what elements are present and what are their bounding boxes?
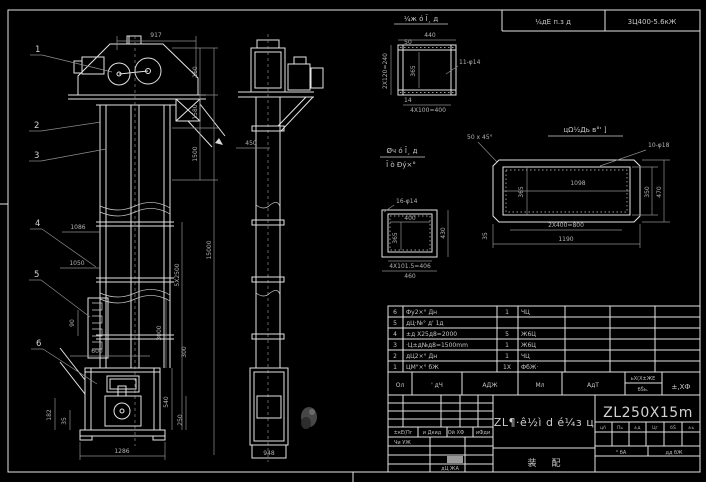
dim-15000: 15000 [206, 240, 213, 259]
gray-smudge [301, 407, 317, 429]
part-name: Фу2×° Дн [406, 309, 437, 316]
dim-365-flange: 365 [392, 232, 399, 244]
dim-160: 160 [192, 66, 199, 78]
part-no: 4 [393, 331, 397, 338]
dim-600: 600 [91, 348, 103, 355]
table-footer-name: ' дЧ [431, 382, 443, 389]
dim-1286: 1286 [114, 448, 129, 455]
dim-365-plate: 365 [518, 186, 525, 198]
stage-char-2: 配 [551, 458, 560, 469]
mid-note-line1: Øч ó Ī¸ д [386, 146, 417, 155]
dim-50: 50 [404, 39, 412, 46]
tb-right-s2: Пь [617, 425, 623, 431]
parts-row-1: 1 ЦМ"×° бЖ 1X ФбЖ· [393, 364, 538, 371]
dim-470: 470 [656, 186, 663, 198]
channel-note: ¼ж ó Ī¸ д [404, 14, 439, 23]
mid-note: Øч ó Ī¸ д Ī ò Đý×° [380, 146, 425, 169]
model-number: ZL250X15m [603, 405, 693, 421]
balloon-4: 4 [35, 219, 40, 229]
dim-250: 250 [177, 414, 184, 426]
dim-365-channel: 365 [410, 65, 417, 77]
tb-left-h1: ±кЕ(Пг [394, 430, 413, 436]
dim-2x120: 2X120=240 [382, 53, 389, 89]
gray-stamp-cell [447, 456, 463, 463]
parts-row-6: 6 Фу2×° Дн 1 ЧЦ [393, 309, 530, 316]
part-no: 6 [393, 309, 397, 316]
plate-detail: цΩ½Дь в°' ] 50 x 45° 10-φ18 1098 365 350… [467, 126, 670, 248]
balloon-1: 1 [35, 45, 40, 55]
part-qty: 1 [505, 353, 509, 360]
table-footer-material: АдТ [587, 382, 599, 389]
tb-right-a1: ° бА [616, 450, 627, 456]
dim-460: 460 [404, 273, 416, 280]
header-left-note: ¼дЕ п.з д [535, 18, 571, 26]
dim-1098: 1098 [570, 180, 585, 187]
dim-1580: 1580 [192, 104, 199, 119]
dim-2x400: 2X400=800 [548, 222, 584, 229]
stage-char-1: 装 [527, 457, 536, 469]
tb-left-h2: и Дкид [423, 430, 442, 436]
part-name: дЦ2×° Дн [406, 353, 437, 360]
dim-400: 400 [404, 215, 416, 222]
part-qty: 1X [503, 364, 511, 371]
part-name: ЦМ"×° бЖ [406, 364, 439, 371]
parts-row-2: 2 дЦ2×° Дн 1 ЧЦ [393, 353, 530, 360]
channel-detail: ¼ж ó Ī¸ д 440 50 11-φ14 2X120=240 365 14… [382, 14, 481, 114]
parts-table: 6 Фу2×° Дн 1 ЧЦ 5 дЦ·№° д' 1д 4 ±д X25д8… [388, 306, 700, 395]
dim-5x2500: 5X2500 [174, 263, 181, 286]
tb-left-h4: иФди [476, 430, 490, 436]
part-material: ФбЖ· [521, 364, 538, 371]
tb-right-s6: ±ь [688, 425, 695, 431]
dim-14: 14 [404, 97, 412, 104]
part-qty: 5 [505, 331, 509, 338]
dim-440: 440 [424, 32, 436, 39]
table-footer-remark: ±,XФ [672, 383, 691, 391]
part-no: 5 [393, 320, 397, 327]
title-block: ±кЕ(Пг и Дкид Ой ХФ иФди Чи УЖ дЦ ЖА ZL¶… [388, 395, 700, 472]
tb-right-s3: ±д [634, 425, 641, 431]
part-material: ЧЦ [521, 353, 530, 360]
table-footer-drawingno: АДЖ [482, 382, 498, 389]
part-name: ±д X25д8=2000 [406, 331, 457, 338]
dim-4x100: 4X100=400 [410, 107, 446, 114]
part-name: ·Ц±д№д8=1500mm [406, 342, 468, 349]
dim-430: 430 [440, 227, 447, 239]
part-material: ЧЦ [521, 309, 530, 316]
tb-right-s5: бŠ [670, 424, 676, 431]
table-footer-weight1: ьΧ(X±ЖE [631, 376, 655, 382]
dim-11-holes: 11-φ14 [459, 59, 481, 66]
tb-left-r2: дЦ ЖА [441, 466, 459, 472]
header-strip: ¼дЕ п.з д 3Ц400-5.6кЖ [502, 10, 700, 31]
tb-right-s1: цñ [600, 425, 606, 431]
cad-drawing-canvas[interactable]: ¼дЕ п.з д 3Ц400-5.6кЖ [0, 0, 706, 482]
dim-917: 917 [150, 32, 162, 39]
part-material: Ж6Ц [521, 331, 536, 338]
dim-35-plate: 35 [482, 232, 489, 240]
tb-left-r1: Чи УЖ [394, 440, 411, 446]
balloon-2: 2 [34, 121, 39, 131]
parts-row-3: 3 ·Ц±д№д8=1500mm 1 Ж6Ц [393, 342, 536, 349]
part-name: дЦ·№° д' 1д [406, 320, 444, 327]
dim-1050: 1050 [69, 260, 84, 267]
dim-300: 300 [181, 346, 188, 358]
dim-1086: 1086 [70, 224, 85, 231]
part-no: 2 [393, 353, 397, 360]
dim-10-holes: 10-φ18 [648, 142, 670, 149]
dim-1190: 1190 [558, 236, 573, 243]
dim-35-boot: 35 [61, 417, 68, 425]
dim-16-holes: 16-φ14 [396, 198, 418, 205]
balloon-3: 3 [34, 151, 39, 161]
dim-450: 450 [245, 140, 257, 147]
tb-right-a2: дд бЖ [666, 450, 684, 456]
part-no: 3 [393, 342, 397, 349]
dim-350: 350 [644, 186, 651, 198]
part-qty: 1 [505, 342, 509, 349]
balloon-5: 5 [34, 270, 39, 280]
tb-right-s4: Цг [652, 425, 658, 431]
dim-4x101: 4X101.5=406 [389, 263, 431, 270]
dim-90: 90 [69, 319, 76, 327]
cad-drawing-page: ¼дЕ п.з д 3Ц400-5.6кЖ [0, 0, 706, 482]
table-footer-qty: Мл [535, 382, 544, 389]
part-qty: 1 [505, 309, 509, 316]
header-right-note: 3Ц400-5.6кЖ [628, 18, 677, 26]
dim-1500: 1500 [192, 146, 199, 161]
part-material: Ж6Ц [521, 342, 536, 349]
drawing-title: ZL¶·ê½ì d é¼з ц [494, 416, 594, 429]
parts-row-5: 5 дЦ·№° д' 1д [393, 320, 443, 327]
dim-3000: 3000 [156, 325, 163, 340]
parts-row-4: 4 ±д X25д8=2000 5 Ж6Ц [393, 331, 536, 338]
chamfer-note: 50 x 45° [467, 134, 493, 141]
balloon-6: 6 [36, 339, 41, 349]
mid-note-line2: Ī ò Đý×° [386, 160, 416, 169]
part-no: 1 [393, 364, 397, 371]
dim-948: 948 [263, 450, 275, 457]
dim-182: 182 [46, 409, 53, 421]
plate-title: цΩ½Дь в°' ] [563, 126, 606, 134]
side-view-geometry: 450 948 [236, 34, 323, 462]
tb-left-h3: Ой ХФ [448, 429, 465, 436]
table-footer-weight2: бŠь. [638, 386, 649, 393]
flange-detail: 16-φ14 400 365 430 4X101.5=406 460 [382, 198, 448, 280]
dim-540: 540 [163, 396, 170, 408]
table-footer-seq: Ол [396, 382, 405, 389]
